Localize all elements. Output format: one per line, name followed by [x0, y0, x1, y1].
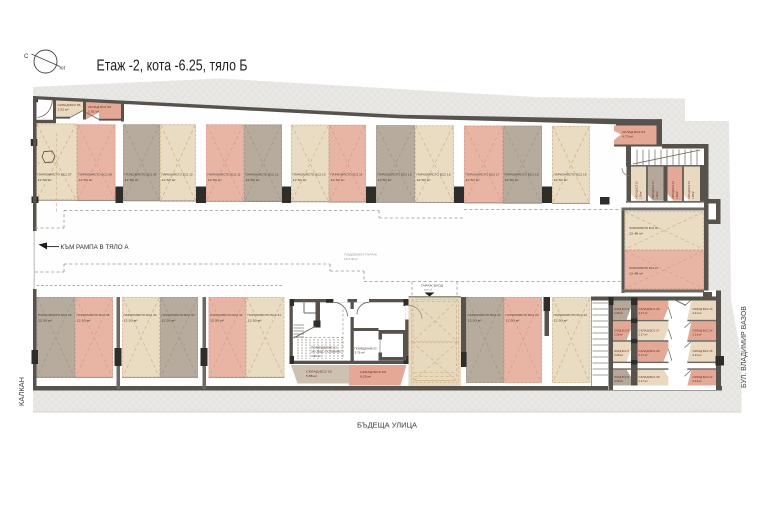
svg-text:ПАРКОМЯСТО БС2 23: ПАРКОМЯСТО БС2 23	[506, 313, 539, 317]
svg-text:юг: юг	[60, 66, 66, 72]
svg-text:12.50 м²: 12.50 м²	[125, 178, 139, 182]
svg-text:12.48 м²: 12.48 м²	[629, 271, 643, 275]
svg-text:ПАРКОМЯСТО БС2 07: ПАРКОМЯСТО БС2 07	[38, 173, 72, 177]
svg-text:ПАРКОМЯСТО БС2 09: ПАРКОМЯСТО БС2 09	[125, 173, 157, 177]
svg-text:2.28 м²: 2.28 м²	[614, 312, 623, 315]
svg-text:ПАРКОМЯСТО БС2 10: ПАРКОМЯСТО БС2 10	[162, 173, 193, 177]
svg-text:12.50 м²: 12.50 м²	[293, 178, 307, 182]
svg-text:4.30 м²: 4.30 м²	[311, 354, 321, 358]
svg-text:ПАРКОМЯСТО БС2 22: ПАРКОМЯСТО БС2 22	[554, 313, 588, 317]
svg-text:СКЛАД БС2 11: СКЛАД БС2 11	[651, 181, 655, 199]
svg-text:ПАРКОМЯСТО БС2 13: ПАРКОМЯСТО БС2 13	[293, 173, 326, 177]
svg-text:2.27 м²: 2.27 м²	[639, 333, 648, 336]
svg-text:СКЛАД БС2 19: СКЛАД БС2 19	[639, 376, 661, 379]
svg-text:12.50 м²: 12.50 м²	[38, 178, 52, 182]
svg-text:2.28 м²: 2.28 м²	[614, 333, 623, 336]
svg-text:12.50 м²: 12.50 м²	[468, 318, 482, 322]
svg-text:СКЛАД БС2 05: СКЛАД БС2 05	[58, 103, 81, 107]
svg-text:ПАРКОМЯСТО БС2 11: ПАРКОМЯСТО БС2 11	[208, 173, 241, 177]
svg-text:СКЛАД БС2 16: СКЛАД БС2 16	[639, 308, 661, 311]
svg-text:СКЛАД БС2 18: СКЛАД БС2 18	[639, 350, 661, 353]
svg-text:12.50 м²: 12.50 м²	[248, 318, 262, 322]
svg-text:ПАРКОМЯСТО БС2 20: ПАРКОМЯСТО БС2 20	[629, 226, 658, 230]
svg-text:2.21 м²: 2.21 м²	[693, 380, 702, 383]
svg-text:ПОМЕЩЕНИЕ 03: ПОМЕЩЕНИЕ 03	[355, 347, 377, 351]
svg-text:12.50 м²: 12.50 м²	[162, 318, 176, 322]
svg-text:2.27 м²: 2.27 м²	[639, 354, 648, 357]
svg-text:12.50 м²: 12.50 м²	[331, 178, 345, 182]
svg-text:12.50 м²: 12.50 м²	[506, 318, 520, 322]
svg-text:12.50 м²: 12.50 м²	[210, 318, 224, 322]
svg-text:СКЛАД БС2 12: СКЛАД БС2 12	[693, 376, 714, 379]
svg-text:1.91 м²: 1.91 м²	[88, 110, 99, 114]
svg-text:2.27 м²: 2.27 м²	[639, 380, 648, 383]
svg-text:ГАРАЖ ВХОД: ГАРАЖ ВХОД	[421, 284, 443, 288]
svg-text:СКЛАД БС2 07: СКЛАД БС2 07	[614, 350, 630, 353]
svg-text:12.50 м²: 12.50 м²	[554, 178, 568, 182]
svg-text:2.21 м²: 2.21 м²	[693, 333, 702, 336]
svg-text:1.98 м²: 1.98 м²	[692, 191, 695, 199]
svg-text:12.50 м²: 12.50 м²	[378, 178, 392, 182]
svg-text:ПАРКОМЯСТО БС2 31: ПАРКОМЯСТО БС2 31	[248, 313, 282, 317]
svg-text:КАЛКАН: КАЛКАН	[19, 377, 26, 406]
svg-text:СКЛАД БС2 08: СКЛАД БС2 08	[614, 329, 630, 332]
svg-text:2.21 м²: 2.21 м²	[693, 354, 702, 357]
svg-text:С: С	[24, 54, 29, 60]
svg-text:БЪДЕЩА УЛИЦА: БЪДЕЩА УЛИЦА	[357, 423, 417, 430]
svg-text:12.50 м²: 12.50 м²	[246, 178, 260, 182]
svg-text:1.98 м²: 1.98 м²	[676, 191, 679, 199]
svg-text:1.98 м²: 1.98 м²	[656, 191, 659, 199]
svg-text:ПАРКОМЯСТО БС2 36: ПАРКОМЯСТО БС2 36	[38, 313, 72, 317]
svg-text:СКЛАД БС2 15: СКЛАД БС2 15	[693, 350, 714, 353]
svg-text:ПАРКОМЯСТО БС2 08: ПАРКОМЯСТО БС2 08	[79, 173, 113, 177]
svg-text:12.50 м²: 12.50 м²	[505, 178, 519, 182]
svg-text:12.50 м²: 12.50 м²	[162, 178, 176, 182]
svg-text:9.29 м²: 9.29 м²	[360, 375, 371, 379]
svg-text:СКЛАД БС2 09: СКЛАД БС2 09	[614, 308, 630, 311]
svg-text:12.50 м²: 12.50 м²	[124, 318, 138, 322]
svg-text:12.50 м²: 12.50 м²	[77, 318, 91, 322]
svg-text:2.28 м²: 2.28 м²	[614, 354, 623, 357]
svg-text:ПАРКОМЯСТО БС2 15: ПАРКОМЯСТО БС2 15	[378, 173, 412, 177]
svg-text:ПАРКОМЯСТО БС2 24: ПАРКОМЯСТО БС2 24	[468, 313, 501, 317]
svg-text:ПОМЕЩЕНИЕ 02: ПОМЕЩЕНИЕ 02	[311, 346, 338, 350]
svg-text:СКЛАД БС2 06: СКЛАД БС2 06	[614, 376, 630, 379]
svg-text:ПАРКОМЯСТО БС2 14: ПАРКОМЯСТО БС2 14	[331, 173, 363, 177]
svg-text:12.50 м²: 12.50 м²	[554, 318, 568, 322]
svg-text:кота ±0: кота ±0	[424, 289, 433, 292]
svg-text:2.27 м²: 2.27 м²	[639, 312, 648, 315]
svg-text:2.28 м²: 2.28 м²	[614, 380, 623, 383]
svg-text:12.50 м²: 12.50 м²	[38, 318, 52, 322]
svg-text:СКЛАД БС2 14: СКЛАД БС2 14	[693, 329, 714, 332]
svg-text:СКЛАД БС2 13: СКЛАД БС2 13	[693, 308, 714, 311]
svg-text:ПАРКОМЯСТО БС2 18: ПАРКОМЯСТО БС2 18	[505, 173, 539, 177]
svg-text:12.50 м²: 12.50 м²	[79, 178, 93, 182]
svg-text:СКЛАД БС2 12: СКЛАД БС2 12	[671, 180, 675, 199]
svg-text:ПАРКОМЯСТО БС2 35: ПАРКОМЯСТО БС2 35	[77, 313, 110, 317]
svg-text:БУЛ. ВЛАДИМИР ВАЗОВ: БУЛ. ВЛАДИМИР ВАЗОВ	[741, 306, 748, 388]
svg-text:1.98 м²: 1.98 м²	[640, 191, 643, 199]
svg-text:3.76 м²: 3.76 м²	[355, 351, 365, 355]
svg-text:ПАРКОМЯСТО БС2 33: ПАРКОМЯСТО БС2 33	[162, 313, 195, 317]
svg-text:5.88 м²: 5.88 м²	[306, 374, 317, 378]
svg-text:2.21 м²: 2.21 м²	[693, 312, 702, 315]
svg-text:12.50 м²: 12.50 м²	[417, 178, 431, 182]
svg-text:1013.48 м²: 1013.48 м²	[344, 257, 358, 261]
svg-text:12.48 м²: 12.48 м²	[629, 231, 643, 235]
svg-text:ЗА ОБЩО ПОЛЗВАНЕ: ЗА ОБЩО ПОЛЗВАНЕ	[311, 350, 341, 354]
svg-text:ПАРКОМЯСТО БС2 16: ПАРКОМЯСТО БС2 16	[417, 173, 451, 177]
svg-text:1.91 м²: 1.91 м²	[58, 108, 69, 112]
svg-text:СКЛАД БС2 13: СКЛАД БС2 13	[687, 180, 691, 199]
svg-text:12.50 м²: 12.50 м²	[208, 178, 222, 182]
svg-text:12.50 м²: 12.50 м²	[466, 178, 480, 182]
svg-text:СКЛАД БС2 06: СКЛАД БС2 06	[88, 105, 111, 109]
svg-text:СКЛАД БС2 02: СКЛАД БС2 02	[306, 370, 332, 374]
svg-text:ПАРКОМЯСТО БС2 21: ПАРКОМЯСТО БС2 21	[629, 266, 658, 270]
svg-text:ПАРКОМЯСТО БС2 32: ПАРКОМЯСТО БС2 32	[210, 313, 243, 317]
svg-text:ПАРКОМЯСТО БС2 12: ПАРКОМЯСТО БС2 12	[246, 173, 279, 177]
svg-text:ПАРКОМЯСТО БС2 34: ПАРКОМЯСТО БС2 34	[124, 313, 157, 317]
svg-text:Етаж -2, кота -6.25, тяло Б: Етаж -2, кота -6.25, тяло Б	[97, 58, 248, 75]
svg-text:ПАРКОМЯСТО БС2 17: ПАРКОМЯСТО БС2 17	[466, 173, 500, 177]
svg-text:СКЛАД БС2 17: СКЛАД БС2 17	[639, 329, 661, 332]
svg-text:ПАРКОМЯСТО БС2 19: ПАРКОМЯСТО БС2 19	[554, 173, 587, 177]
svg-text:4.73 м²: 4.73 м²	[622, 135, 633, 139]
svg-text:СКЛАД БС2 03: СКЛАД БС2 03	[360, 370, 386, 374]
svg-text:СКЛАД БС2 10: СКЛАД БС2 10	[635, 180, 639, 199]
svg-text:КЪМ РАМПА В ТЯЛО А: КЪМ РАМПА В ТЯЛО А	[61, 245, 129, 251]
svg-text:СКЛАД БС2 04: СКЛАД БС2 04	[622, 130, 645, 134]
svg-text:ПОДЗЕМЕН ГАРАЖ: ПОДЗЕМЕН ГАРАЖ	[344, 253, 377, 257]
